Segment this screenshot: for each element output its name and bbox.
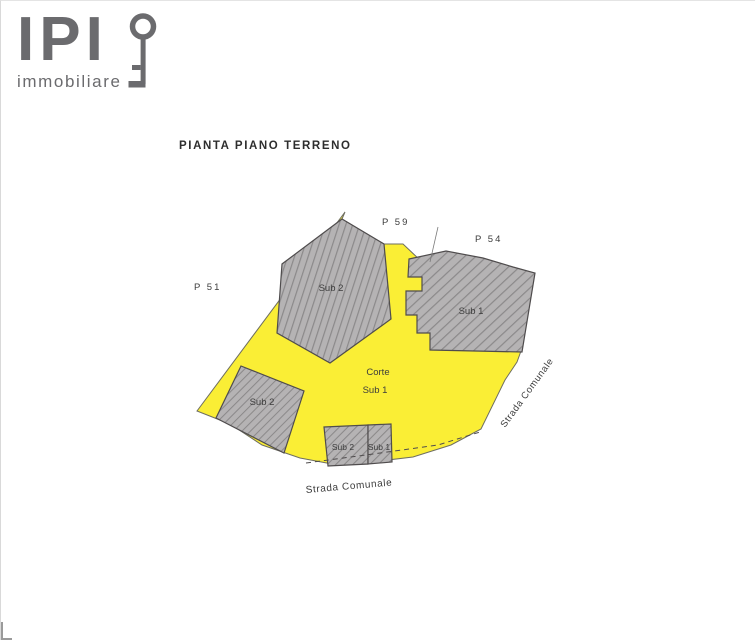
label-sub2-upper: Sub 2 — [319, 283, 344, 294]
label-sub1-bottom: Sub 1 — [368, 442, 390, 452]
label-sub2-bottom: Sub 2 — [332, 442, 354, 452]
road-label-bottom: Strada Comunale — [305, 477, 392, 496]
parcel-label-p51: P 51 — [194, 282, 221, 293]
label-corte-line2: Sub 1 — [363, 385, 388, 396]
label-corte-line1: Corte — [366, 367, 389, 378]
scanned-plan-page: IPI immobiliare PIANTA PIANO TERRENO — [0, 0, 755, 640]
floor-plan: P 51 P 59 P 54 Sub 2 Sub 1 Sub 2 Sub 2 S… — [1, 1, 755, 640]
label-sub1-main: Sub 1 — [459, 306, 484, 317]
label-sub2-mid: Sub 2 — [250, 397, 275, 408]
scan-corner-mark — [1, 622, 12, 640]
parcel-label-p54: P 54 — [475, 234, 502, 245]
parcel-label-p59: P 59 — [382, 217, 409, 228]
